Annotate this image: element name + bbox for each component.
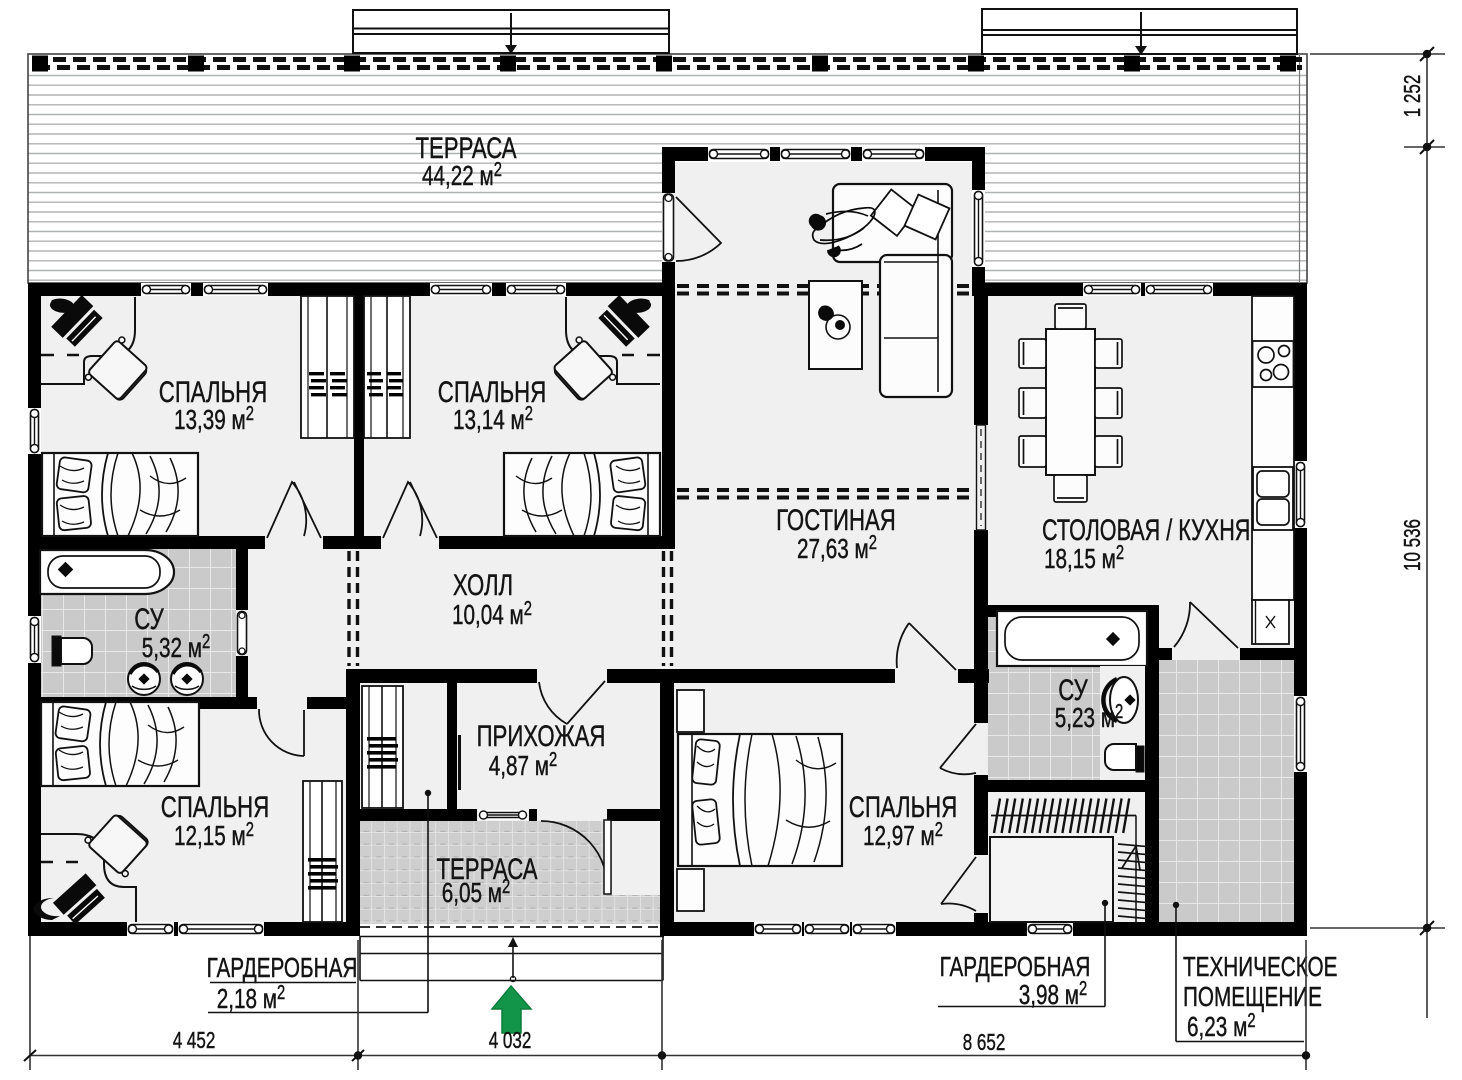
svg-text:13,14 м2: 13,14 м2 [453, 402, 533, 436]
svg-text:5,23 м2: 5,23 м2 [1055, 700, 1124, 734]
svg-text:10,04 м2: 10,04 м2 [452, 597, 532, 631]
svg-text:ТЕХНИЧЕСКОЕ: ТЕХНИЧЕСКОЕ [1183, 952, 1337, 983]
svg-text:СУ: СУ [1058, 673, 1088, 707]
svg-text:2,18 м2: 2,18 м2 [217, 981, 286, 1015]
svg-text:СУ: СУ [134, 602, 164, 636]
svg-text:4 452: 4 452 [173, 1029, 216, 1054]
svg-text:6,05 м2: 6,05 м2 [442, 875, 511, 909]
svg-text:ГАРДЕРОБНАЯ: ГАРДЕРОБНАЯ [940, 952, 1091, 983]
svg-text:4 032: 4 032 [489, 1029, 532, 1054]
svg-text:ПРИХОЖАЯ: ПРИХОЖАЯ [477, 719, 606, 753]
svg-text:ГОСТИНАЯ: ГОСТИНАЯ [776, 503, 896, 537]
svg-text:ХОЛЛ: ХОЛЛ [453, 568, 513, 602]
svg-text:27,63 м2: 27,63 м2 [797, 531, 877, 565]
svg-text:13,39 м2: 13,39 м2 [174, 402, 254, 436]
svg-text:1 252: 1 252 [1401, 75, 1426, 118]
svg-text:12,15 м2: 12,15 м2 [174, 818, 254, 852]
svg-text:5,32 м2: 5,32 м2 [142, 630, 211, 664]
svg-text:18,15 м2: 18,15 м2 [1044, 541, 1124, 575]
svg-text:8 652: 8 652 [963, 1031, 1006, 1056]
svg-text:12,97 м2: 12,97 м2 [863, 818, 943, 852]
svg-text:44,22 м2: 44,22 м2 [422, 158, 502, 192]
svg-text:СТОЛОВАЯ / КУХНЯ: СТОЛОВАЯ / КУХНЯ [1042, 512, 1250, 546]
svg-text:10 536: 10 536 [1401, 519, 1426, 571]
svg-text:4,87 м2: 4,87 м2 [489, 748, 558, 782]
svg-text:ГАРДЕРОБНАЯ: ГАРДЕРОБНАЯ [207, 953, 358, 984]
svg-text:6,23 м2: 6,23 м2 [1187, 1009, 1256, 1043]
